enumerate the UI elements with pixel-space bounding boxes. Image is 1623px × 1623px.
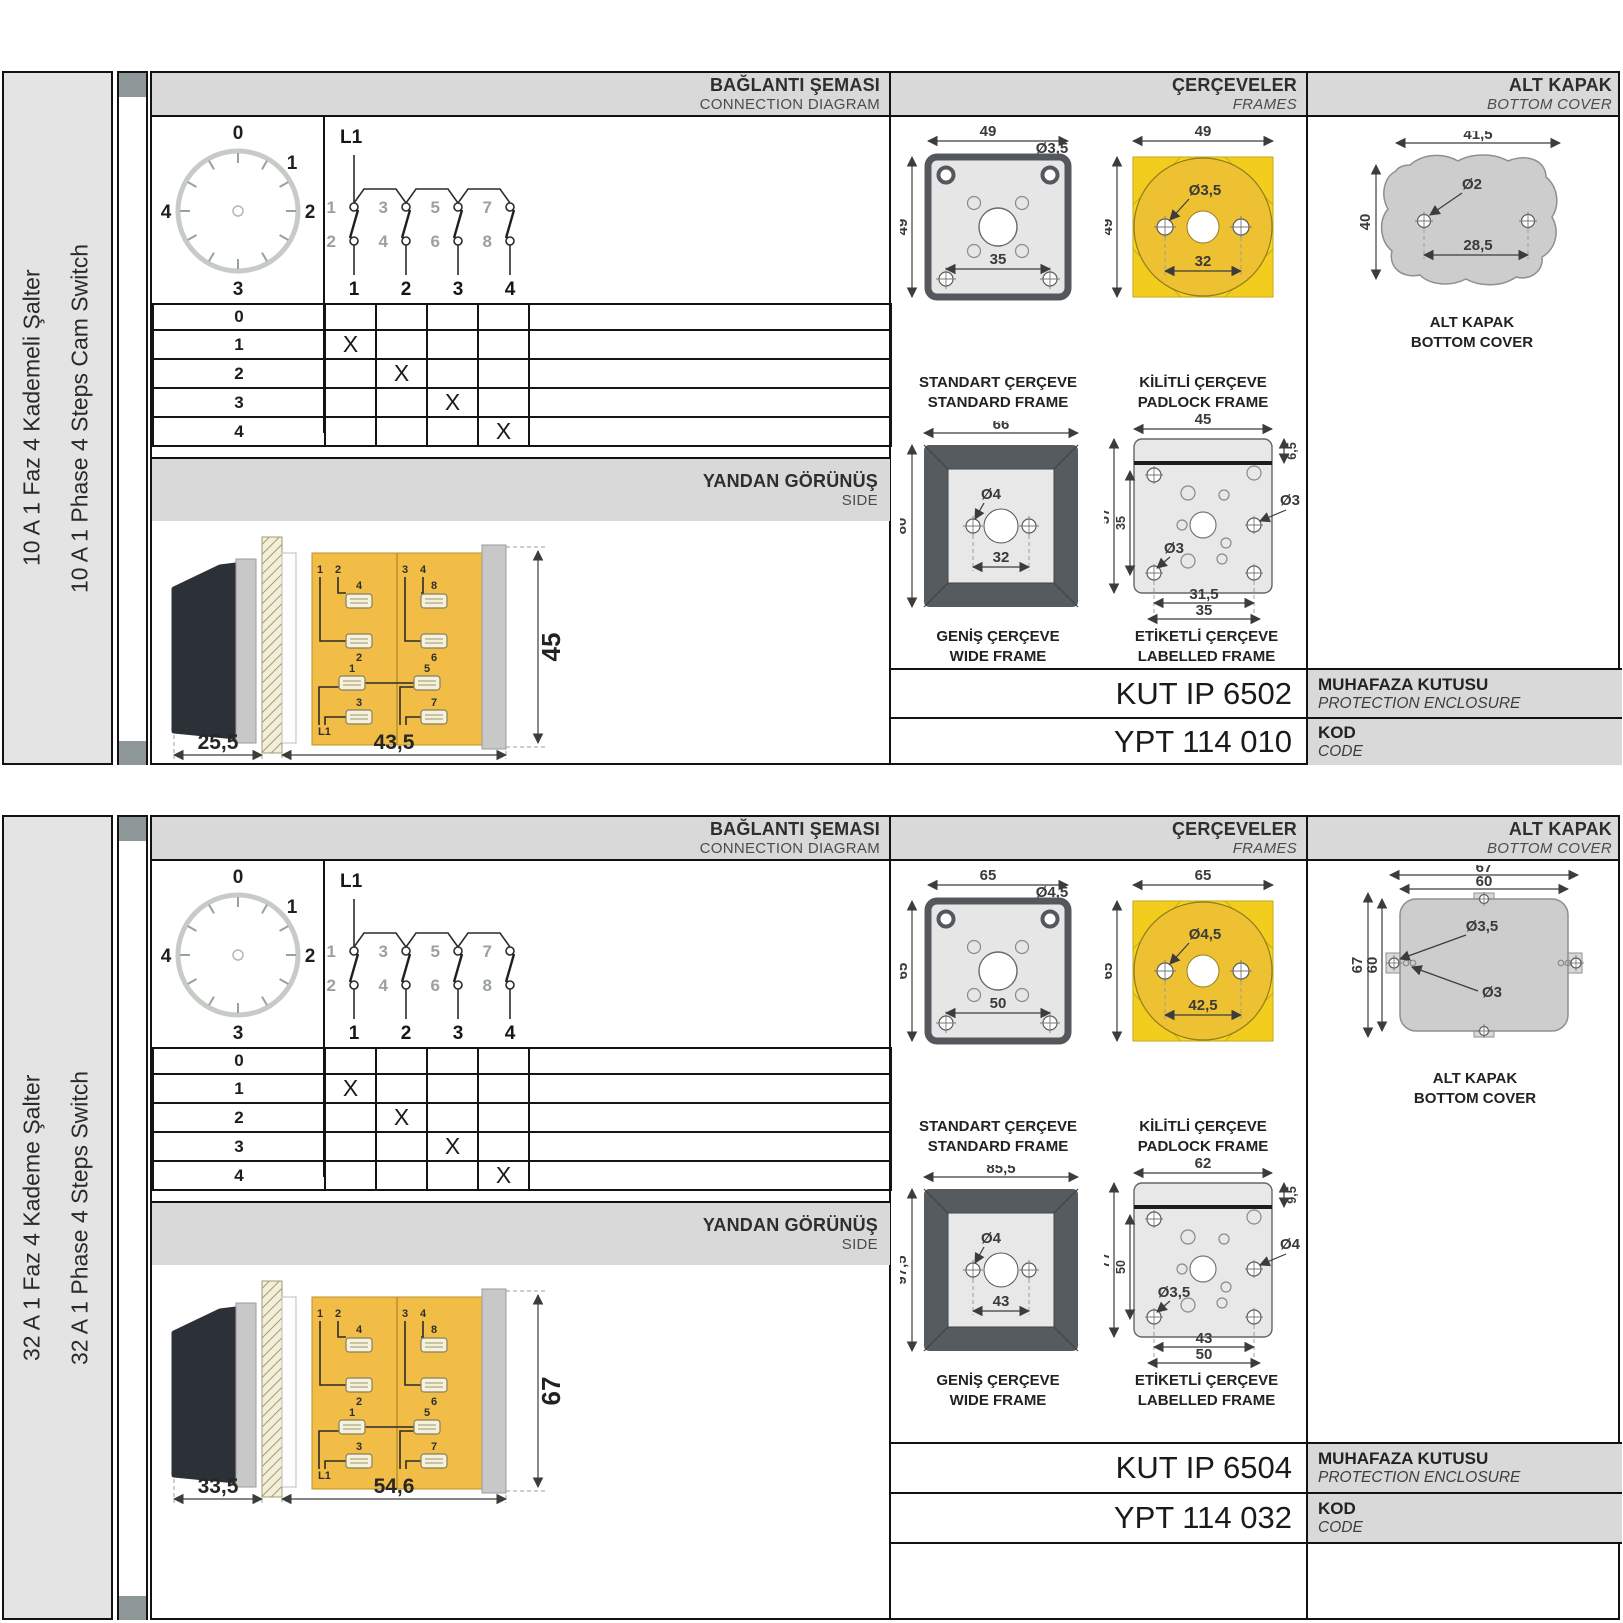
svg-text:35: 35 [1196, 602, 1213, 619]
side-view-figure: 1 2 3 4 4 2 1 3 8 6 5 7 L1 [162, 1269, 702, 1507]
svg-text:66: 66 [993, 421, 1010, 433]
svg-text:65: 65 [900, 963, 911, 980]
svg-text:3: 3 [379, 942, 388, 961]
svg-text:Ø4,5: Ø4,5 [1189, 926, 1222, 943]
side-view-figure: 1 2 3 4 4 2 1 3 8 6 5 7 L1 [162, 525, 702, 763]
table-row: 4X [153, 417, 891, 446]
svg-text:L1: L1 [318, 726, 331, 738]
svg-text:65: 65 [980, 869, 997, 884]
front-plate [236, 559, 256, 743]
svg-text:7: 7 [431, 1441, 437, 1453]
product-label-column: 32 A 1 Faz 4 Kademe Şalter 32 A 1 Phase … [2, 815, 113, 1620]
svg-text:50: 50 [990, 995, 1007, 1012]
svg-text:5: 5 [431, 942, 440, 961]
enclosure-label: MUHAFAZA KUTUSU PROTECTION ENCLOSURE [1308, 1444, 1622, 1492]
svg-text:35: 35 [990, 251, 1007, 268]
svg-text:4: 4 [379, 976, 389, 995]
standard-frame-figure: 49 Ø3,5 49 35 [900, 125, 1096, 369]
terminal [421, 710, 447, 724]
svg-text:1: 1 [327, 942, 336, 961]
svg-text:0: 0 [233, 867, 244, 888]
svg-text:28,5: 28,5 [1463, 237, 1492, 254]
svg-text:3: 3 [402, 1308, 408, 1320]
spine-square-top [119, 817, 146, 841]
svg-text:7: 7 [483, 198, 492, 217]
svg-text:Ø3: Ø3 [1164, 540, 1184, 557]
table-row: 2X [153, 359, 891, 388]
labelled-frame-figure: 45 6,5 57 35 Ø3 Ø3 31,5 35 [1104, 413, 1309, 625]
terminal [346, 594, 372, 608]
contact-1: 1 2 1 [327, 198, 360, 300]
svg-text:31,5: 31,5 [1189, 586, 1218, 603]
svg-text:35: 35 [1114, 516, 1128, 530]
svg-text:Ø3: Ø3 [1280, 492, 1300, 509]
spine-square-bottom [119, 1596, 146, 1620]
svg-text:Ø3,5: Ø3,5 [1189, 182, 1222, 199]
header-bottom-cover: ALT KAPAK BOTTOM COVER [1307, 73, 1622, 115]
svg-text:4: 4 [356, 580, 363, 592]
svg-text:8: 8 [431, 580, 437, 592]
section-body: BAĞLANTI ŞEMASI CONNECTION DIAGRAM ÇERÇE… [150, 815, 1620, 1620]
product-section-10a: 10 A 1 Faz 4 Kademeli Şalter 10 A 1 Phas… [0, 71, 1623, 765]
svg-text:57: 57 [1104, 508, 1113, 525]
header-bottom-cover: ALT KAPAK BOTTOM COVER [1307, 817, 1622, 859]
svg-text:7: 7 [431, 697, 437, 709]
terminal [346, 1454, 372, 1468]
terminal [421, 1454, 447, 1468]
rotary-dial-figure: 0 1 2 3 4 [154, 119, 322, 299]
wide-frame-caption: GENİŞ ÇERÇEVE WIDE FRAME [900, 1371, 1096, 1410]
contact-4: 7 8 4 [483, 198, 516, 300]
dial-pos-4: 4 [161, 202, 172, 223]
padlock-frame-figure: 49 Ø3,5 49 32 [1105, 125, 1301, 369]
table-row: 3X [153, 388, 891, 417]
svg-text:8: 8 [483, 232, 492, 251]
svg-text:6: 6 [431, 1396, 437, 1408]
bottom-cover-figure: 67 60 Ø3,5 Ø3 67 60 [1330, 865, 1620, 1061]
svg-text:42,5: 42,5 [1188, 997, 1217, 1014]
product-code: YPT 114 010 [890, 719, 1306, 765]
side-band-tr: YANDAN GÖRÜNÜŞ [703, 471, 878, 492]
dial-pos-0: 0 [233, 123, 244, 144]
svg-text:4: 4 [505, 279, 516, 300]
circuit-diagram: L1 1 2 1 3 4 2 5 6 3 [324, 117, 890, 303]
contact-2: 3 4 2 [379, 942, 412, 1044]
svg-text:49: 49 [1105, 219, 1116, 236]
svg-text:49: 49 [980, 125, 997, 140]
side-view-band: YANDAN GÖRÜNÜŞ SIDE [152, 1201, 890, 1265]
svg-text:85,5: 85,5 [986, 1165, 1015, 1177]
svg-text:3: 3 [356, 697, 362, 709]
header-frames: ÇERÇEVELER FRAMES [890, 73, 1307, 115]
svg-text:5: 5 [431, 198, 440, 217]
contact-4: 7 8 4 [483, 942, 516, 1044]
padlock-frame-caption: KİLİTLİ ÇERÇEVE PADLOCK FRAME [1105, 1117, 1301, 1156]
svg-text:49: 49 [1195, 125, 1212, 140]
svg-text:L1: L1 [340, 871, 363, 892]
standard-frame-caption: STANDART ÇERÇEVE STANDARD FRAME [900, 1117, 1096, 1156]
enclosure-code: KUT IP 6504 [890, 1444, 1306, 1492]
svg-text:65: 65 [1195, 869, 1212, 884]
terminal [421, 1378, 447, 1392]
svg-text:4: 4 [420, 1308, 427, 1320]
svg-text:2: 2 [401, 1023, 412, 1044]
spine-square-top [119, 73, 146, 97]
svg-text:50: 50 [1196, 1346, 1213, 1363]
enclosure-label: MUHAFAZA KUTUSU PROTECTION ENCLOSURE [1308, 670, 1622, 717]
panel-hatched [262, 537, 282, 753]
svg-text:Ø4: Ø4 [981, 486, 1002, 503]
product-code-label: KOD CODE [1308, 719, 1622, 765]
header-frames: ÇERÇEVELER FRAMES [890, 817, 1307, 859]
spine-column [117, 71, 148, 765]
labelled-frame-caption: ETİKETLİ ÇERÇEVE LABELLED FRAME [1104, 627, 1309, 666]
standard-frame-caption: STANDART ÇERÇEVE STANDARD FRAME [900, 373, 1096, 412]
side-view-band: YANDAN GÖRÜNÜŞ SIDE [152, 457, 890, 521]
svg-text:2: 2 [356, 1396, 362, 1408]
terminal [346, 1338, 372, 1352]
svg-text:60: 60 [1476, 873, 1493, 890]
dial-pos-1: 1 [287, 153, 298, 174]
svg-text:3: 3 [233, 1023, 244, 1043]
svg-text:Ø3,5: Ø3,5 [1158, 1284, 1191, 1301]
svg-text:45: 45 [1195, 413, 1212, 428]
bottom-cover-caption: ALT KAPAK BOTTOM COVER [1332, 313, 1612, 352]
product-code: YPT 114 032 [890, 1494, 1306, 1542]
table-row: 0 [153, 304, 891, 330]
svg-text:1: 1 [349, 663, 355, 675]
svg-text:4: 4 [379, 232, 389, 251]
circuit-l1-label: L1 [340, 127, 363, 148]
svg-text:Ø2: Ø2 [1462, 176, 1482, 193]
product-title-turkish: 32 A 1 Faz 4 Kademe Şalter [10, 817, 54, 1618]
svg-text:41,5: 41,5 [1463, 131, 1492, 143]
table-row: 3X [153, 1132, 891, 1161]
svg-text:2: 2 [305, 946, 316, 967]
svg-text:3: 3 [453, 1023, 464, 1044]
svg-text:2: 2 [401, 279, 412, 300]
dim-body: 54,6 [374, 1475, 415, 1498]
svg-text:Ø3: Ø3 [1482, 984, 1502, 1001]
dim-handle: 33,5 [198, 1475, 239, 1498]
labelled-frame-figure: 62 9,5 77 50 Ø4 Ø3,5 43 50 [1104, 1157, 1309, 1369]
wide-frame-figure: 66 Ø4 80 32 [900, 421, 1096, 621]
product-title-turkish: 10 A 1 Faz 4 Kademeli Şalter [10, 73, 54, 763]
svg-text:43: 43 [993, 1293, 1010, 1310]
svg-text:6: 6 [431, 232, 440, 251]
svg-text:L1: L1 [318, 1470, 331, 1482]
padlock-frame-figure: 65 Ø4,5 65 42,5 [1105, 869, 1301, 1113]
standard-frame-figure: 65 Ø4,5 65 50 [900, 869, 1096, 1113]
dim-height: 67 [536, 1377, 566, 1406]
header-cover-en: BOTTOM COVER [1487, 96, 1612, 113]
bottom-cover-caption: ALT KAPAK BOTTOM COVER [1330, 1069, 1620, 1108]
terminal [346, 1378, 372, 1392]
terminal [339, 676, 365, 690]
svg-text:6: 6 [431, 976, 440, 995]
spacer [282, 1297, 296, 1487]
svg-text:5: 5 [424, 1407, 430, 1419]
terminal [346, 710, 372, 724]
header-connection-tr: BAĞLANTI ŞEMASI [710, 75, 880, 96]
product-label-column: 10 A 1 Faz 4 Kademeli Şalter 10 A 1 Phas… [2, 71, 113, 765]
switching-table: 0 1X 2X 3X 4X [152, 1047, 892, 1191]
contact-3: 5 6 3 [431, 198, 464, 300]
svg-text:7: 7 [483, 942, 492, 961]
switch-handle [174, 565, 236, 737]
terminal [421, 634, 447, 648]
table-row: 4X [153, 1161, 891, 1190]
svg-text:1: 1 [349, 1023, 360, 1044]
svg-text:4: 4 [505, 1023, 516, 1044]
product-section-32a: 32 A 1 Faz 4 Kademe Şalter 32 A 1 Phase … [0, 815, 1623, 1620]
svg-text:32: 32 [993, 549, 1010, 566]
section-header: BAĞLANTI ŞEMASI CONNECTION DIAGRAM ÇERÇE… [152, 817, 1618, 861]
bottom-cover-figure: 41,5 Ø2 40 28,5 [1332, 131, 1612, 301]
svg-text:Ø3,5: Ø3,5 [1466, 918, 1499, 935]
svg-text:3: 3 [402, 564, 408, 576]
product-title-english: 10 A 1 Phase 4 Steps Cam Switch [58, 73, 102, 763]
svg-text:3: 3 [356, 1441, 362, 1453]
dial-pos-3: 3 [233, 279, 244, 299]
svg-text:4: 4 [161, 946, 172, 967]
terminal [421, 594, 447, 608]
svg-text:1: 1 [349, 1407, 355, 1419]
table-row: 2X [153, 1103, 891, 1132]
dim-height: 45 [536, 633, 566, 662]
svg-text:40: 40 [1357, 214, 1374, 231]
svg-text:49: 49 [900, 219, 911, 236]
svg-text:8: 8 [431, 1324, 437, 1336]
dial-pos-2: 2 [305, 202, 316, 223]
header-connection-en: CONNECTION DIAGRAM [700, 96, 880, 113]
svg-text:60: 60 [1364, 957, 1381, 974]
terminal [414, 676, 440, 690]
table-row: 1X [153, 1074, 891, 1103]
enclosure-code: KUT IP 6502 [890, 670, 1306, 717]
terminal [414, 1420, 440, 1434]
svg-text:97,5: 97,5 [900, 1255, 910, 1284]
rotary-dial-figure: 0 1 2 3 4 [154, 863, 322, 1043]
spine-square-bottom [119, 741, 146, 765]
header-connection-diagram: BAĞLANTI ŞEMASI CONNECTION DIAGRAM [152, 73, 890, 115]
svg-text:8: 8 [483, 976, 492, 995]
svg-text:5: 5 [424, 663, 430, 675]
svg-text:2: 2 [327, 232, 336, 251]
svg-text:4: 4 [356, 1324, 363, 1336]
svg-text:32: 32 [1195, 253, 1212, 270]
wide-frame-figure: 85,5 Ø4 97,5 43 [900, 1165, 1096, 1365]
header-frames-en: FRAMES [1233, 96, 1297, 113]
svg-text:1: 1 [317, 1308, 323, 1320]
side-band-en: SIDE [842, 492, 878, 509]
wide-frame-caption: GENİŞ ÇERÇEVE WIDE FRAME [900, 627, 1096, 666]
header-cover-tr: ALT KAPAK [1509, 75, 1612, 96]
svg-text:1: 1 [287, 897, 298, 918]
terminal [421, 1338, 447, 1352]
svg-text:2: 2 [356, 652, 362, 664]
table-row: 0 [153, 1048, 891, 1074]
svg-text:Ø4: Ø4 [1280, 1236, 1301, 1253]
table-row: 1X [153, 330, 891, 359]
header-frames-tr: ÇERÇEVELER [1172, 75, 1297, 96]
labelled-frame-caption: ETİKETLİ ÇERÇEVE LABELLED FRAME [1104, 1371, 1309, 1410]
terminal [346, 634, 372, 648]
section-body: BAĞLANTI ŞEMASI CONNECTION DIAGRAM ÇERÇE… [150, 71, 1620, 765]
header-connection-diagram: BAĞLANTI ŞEMASI CONNECTION DIAGRAM [152, 817, 890, 859]
terminal [339, 1420, 365, 1434]
contact-3: 5 6 3 [431, 942, 464, 1044]
switch-handle [174, 1309, 236, 1481]
svg-text:80: 80 [900, 518, 910, 535]
svg-text:9,5: 9,5 [1285, 1186, 1299, 1203]
svg-text:3: 3 [379, 198, 388, 217]
svg-text:3: 3 [453, 279, 464, 300]
catalog-page: 10 A 1 Faz 4 Kademeli Şalter 10 A 1 Phas… [0, 0, 1623, 1623]
svg-text:50: 50 [1114, 1260, 1128, 1274]
svg-text:77: 77 [1104, 1252, 1113, 1269]
svg-text:1: 1 [349, 279, 360, 300]
panel-hatched [262, 1281, 282, 1497]
svg-text:65: 65 [1105, 963, 1116, 980]
svg-text:2: 2 [335, 564, 341, 576]
svg-text:1: 1 [327, 198, 336, 217]
svg-text:1: 1 [317, 564, 323, 576]
rear-plate [482, 1289, 506, 1493]
product-code-label: KOD CODE [1308, 1494, 1622, 1542]
svg-text:Ø4: Ø4 [981, 1230, 1002, 1247]
product-title-english: 32 A 1 Phase 4 Steps Switch [58, 817, 102, 1618]
svg-text:62: 62 [1195, 1157, 1212, 1172]
spine-column [117, 815, 148, 1620]
rear-plate [482, 545, 506, 749]
svg-text:6,5: 6,5 [1285, 442, 1299, 459]
front-plate [236, 1303, 256, 1487]
svg-text:4: 4 [420, 564, 427, 576]
contact-1: 1 2 1 [327, 942, 360, 1044]
padlock-frame-caption: KİLİTLİ ÇERÇEVE PADLOCK FRAME [1105, 373, 1301, 412]
svg-text:2: 2 [327, 976, 336, 995]
dim-body: 43,5 [374, 731, 415, 754]
contact-2: 3 4 2 [379, 198, 412, 300]
svg-text:43: 43 [1196, 1330, 1213, 1347]
svg-text:6: 6 [431, 652, 437, 664]
section-header: BAĞLANTI ŞEMASI CONNECTION DIAGRAM ÇERÇE… [152, 73, 1618, 117]
spacer [282, 553, 296, 743]
dim-handle: 25,5 [198, 731, 239, 754]
switching-table: 0 1X 2X 3X 4X [152, 303, 892, 447]
svg-text:2: 2 [335, 1308, 341, 1320]
circuit-diagram: L1 1 2 1 3 4 2 5 6 3 [324, 861, 890, 1047]
